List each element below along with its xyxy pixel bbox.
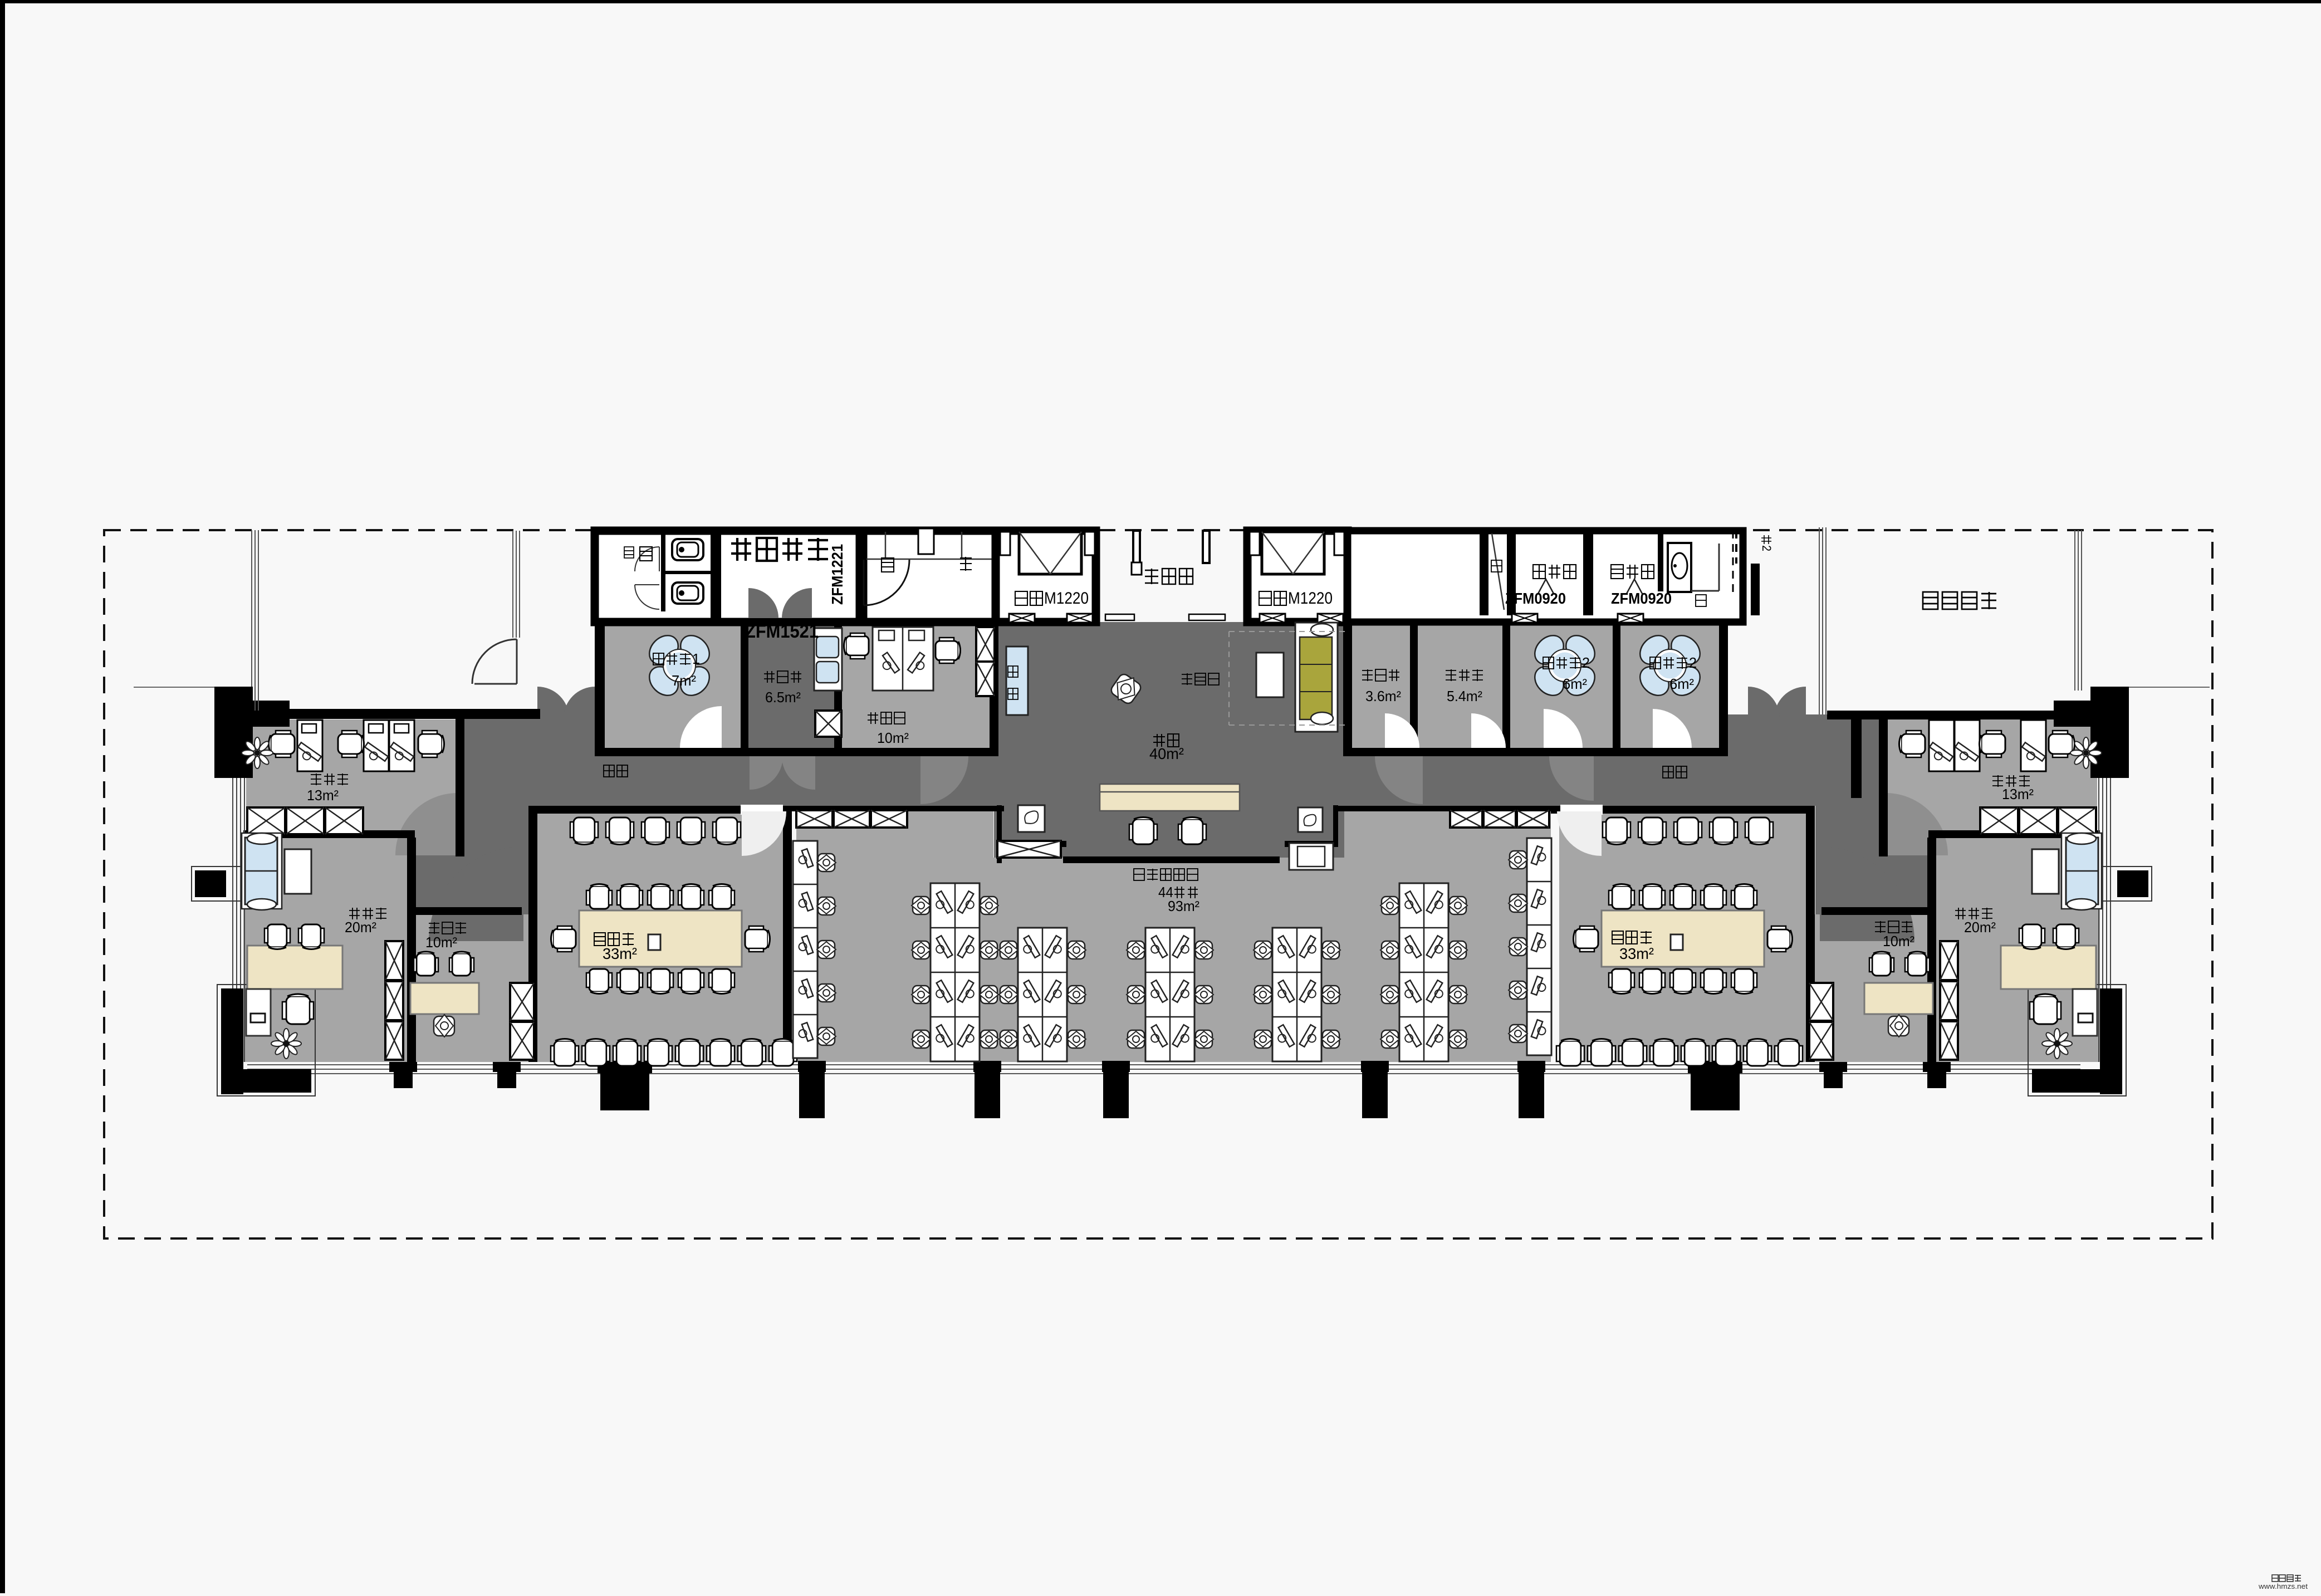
svg-text:ZFM1221: ZFM1221	[829, 544, 846, 605]
svg-text:20m²: 20m²	[1964, 919, 1996, 936]
svg-text:6m²: 6m²	[1669, 675, 1694, 692]
svg-text:7m²: 7m²	[672, 672, 696, 689]
svg-text:www.hmzs.net: www.hmzs.net	[2258, 1582, 2308, 1590]
svg-text:10m²: 10m²	[1883, 933, 1914, 949]
svg-text:33m²: 33m²	[1619, 945, 1654, 962]
svg-text:M1220: M1220	[1288, 589, 1333, 608]
svg-text:ZFM0920: ZFM0920	[1611, 590, 1672, 607]
svg-text:2: 2	[1760, 545, 1774, 551]
svg-text:ZFM0920: ZFM0920	[1505, 590, 1566, 607]
svg-text:1: 1	[692, 650, 700, 667]
svg-text:20m²: 20m²	[345, 919, 376, 936]
svg-text:13m²: 13m²	[307, 787, 339, 804]
svg-text:ZFM1521: ZFM1521	[745, 621, 819, 642]
svg-text:40m²: 40m²	[1149, 745, 1184, 762]
svg-text:6m²: 6m²	[1563, 675, 1587, 692]
svg-text:10m²: 10m²	[425, 934, 457, 951]
svg-text:5.4m²: 5.4m²	[1447, 688, 1482, 704]
svg-text:33m²: 33m²	[603, 945, 637, 962]
svg-text:93m²: 93m²	[1168, 898, 1199, 914]
svg-text:2: 2	[1689, 654, 1697, 671]
svg-text:6.5m²: 6.5m²	[765, 689, 801, 706]
svg-text:10m²: 10m²	[877, 730, 909, 746]
svg-text:2: 2	[1582, 654, 1590, 671]
svg-text:3.6m²: 3.6m²	[1365, 688, 1401, 704]
svg-text:M1220: M1220	[1044, 589, 1089, 608]
svg-text:13m²: 13m²	[2002, 786, 2034, 802]
